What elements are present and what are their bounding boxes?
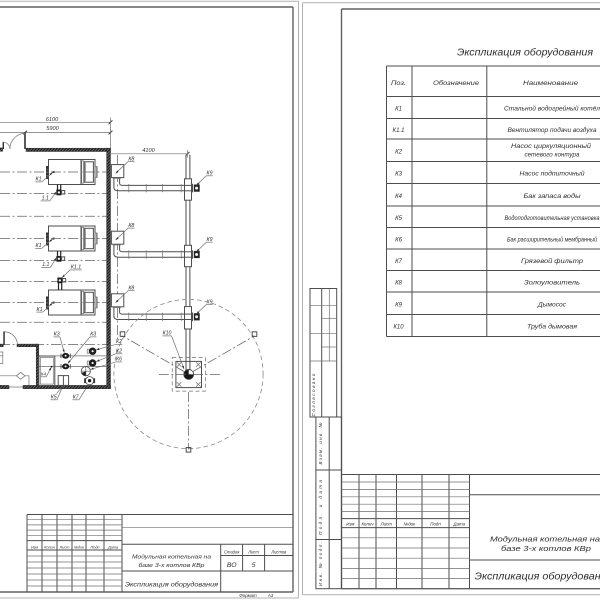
svg-text:Модульная котельная на: Модульная котельная на	[490, 535, 600, 544]
svg-text:Грязевой фильтр: Грязевой фильтр	[521, 258, 584, 265]
svg-text:базе 3-х котлов КВр: базе 3-х котлов КВр	[139, 563, 206, 569]
svg-text:5: 5	[252, 562, 256, 569]
svg-text:Дымосос: Дымосос	[537, 301, 567, 308]
svg-text:К2: К2	[395, 149, 403, 155]
svg-text:Экспликация оборудования: Экспликация оборудования	[457, 47, 594, 59]
svg-text:К4: К4	[41, 372, 47, 377]
svg-text:Колич: Колич	[361, 522, 374, 527]
svg-text:А3: А3	[267, 593, 274, 598]
svg-text:Наименование: Наименование	[523, 80, 579, 87]
svg-text:К3: К3	[395, 172, 403, 178]
svg-text:Дата: Дата	[453, 522, 466, 527]
svg-text:Изм: Изм	[31, 545, 38, 549]
svg-text:Золоуловитель: Золоуловитель	[524, 279, 580, 286]
svg-text:сетевого контура: сетевого контура	[525, 152, 581, 159]
svg-text:Подп: Подп	[430, 522, 441, 527]
svg-text:К7: К7	[395, 259, 403, 265]
svg-text:Водоподготовительная установка: Водоподготовительная установка	[505, 215, 600, 222]
svg-text:Экспликация оборудования: Экспликация оборудования	[125, 581, 218, 589]
svg-text:К5: К5	[395, 216, 403, 222]
svg-text:К10: К10	[393, 325, 404, 331]
svg-text:Экспликация оборудования: Экспликация оборудования	[475, 572, 600, 583]
svg-text:№док: №док	[403, 522, 416, 527]
svg-text:базе 3-х котлов КВр: базе 3-х котлов КВр	[501, 544, 591, 553]
svg-text:Модульная котельная на: Модульная котельная на	[132, 554, 212, 560]
svg-text:Изм: Изм	[346, 522, 354, 527]
svg-text:К4: К4	[395, 194, 403, 200]
svg-text:Согласовано: Согласовано	[311, 373, 316, 416]
svg-text:Листов: Листов	[270, 549, 287, 554]
svg-text:К1: К1	[395, 107, 402, 113]
svg-text:4100: 4100	[142, 148, 155, 154]
svg-text:№док: №док	[74, 545, 84, 549]
svg-text:Насос циркуляционный: Насос циркуляционный	[511, 143, 592, 150]
svg-text:6100: 6100	[46, 117, 59, 123]
svg-text:Стальной водогрейный котёл: Стальной водогрейный котёл	[504, 106, 600, 113]
svg-text:Лист: Лист	[380, 522, 393, 527]
svg-text:Формат: Формат	[239, 593, 257, 598]
svg-text:ВО: ВО	[227, 562, 237, 569]
svg-text:Лист: Лист	[59, 545, 70, 549]
svg-text:Обозначение: Обозначение	[433, 80, 480, 87]
svg-text:К8: К8	[395, 280, 403, 286]
svg-text:Труба дымовая: Труба дымовая	[527, 324, 578, 331]
svg-text:Поз.: Поз.	[391, 80, 406, 87]
svg-text:К9: К9	[395, 302, 403, 308]
svg-text:5900: 5900	[46, 126, 59, 132]
svg-text:К1.1: К1.1	[393, 128, 405, 134]
svg-text:Лист: Лист	[247, 549, 259, 554]
svg-text:Стадия: Стадия	[224, 549, 240, 554]
svg-text:Вентилятор подачи воздуха: Вентилятор подачи воздуха	[508, 127, 598, 134]
svg-text:Насос подпиточный: Насос подпиточный	[520, 171, 586, 178]
svg-text:Бак запаса воды: Бак запаса воды	[524, 193, 582, 200]
svg-text:Бак расширительный мембранный: Бак расширительный мембранный	[507, 236, 597, 243]
svg-text:Подп: Подп	[90, 545, 100, 549]
svg-text:Взам. инв. №: Взам. инв. №	[318, 422, 323, 464]
svg-text:Дата: Дата	[107, 545, 118, 549]
svg-text:Колич: Колич	[44, 545, 55, 549]
svg-text:К6: К6	[395, 237, 403, 243]
